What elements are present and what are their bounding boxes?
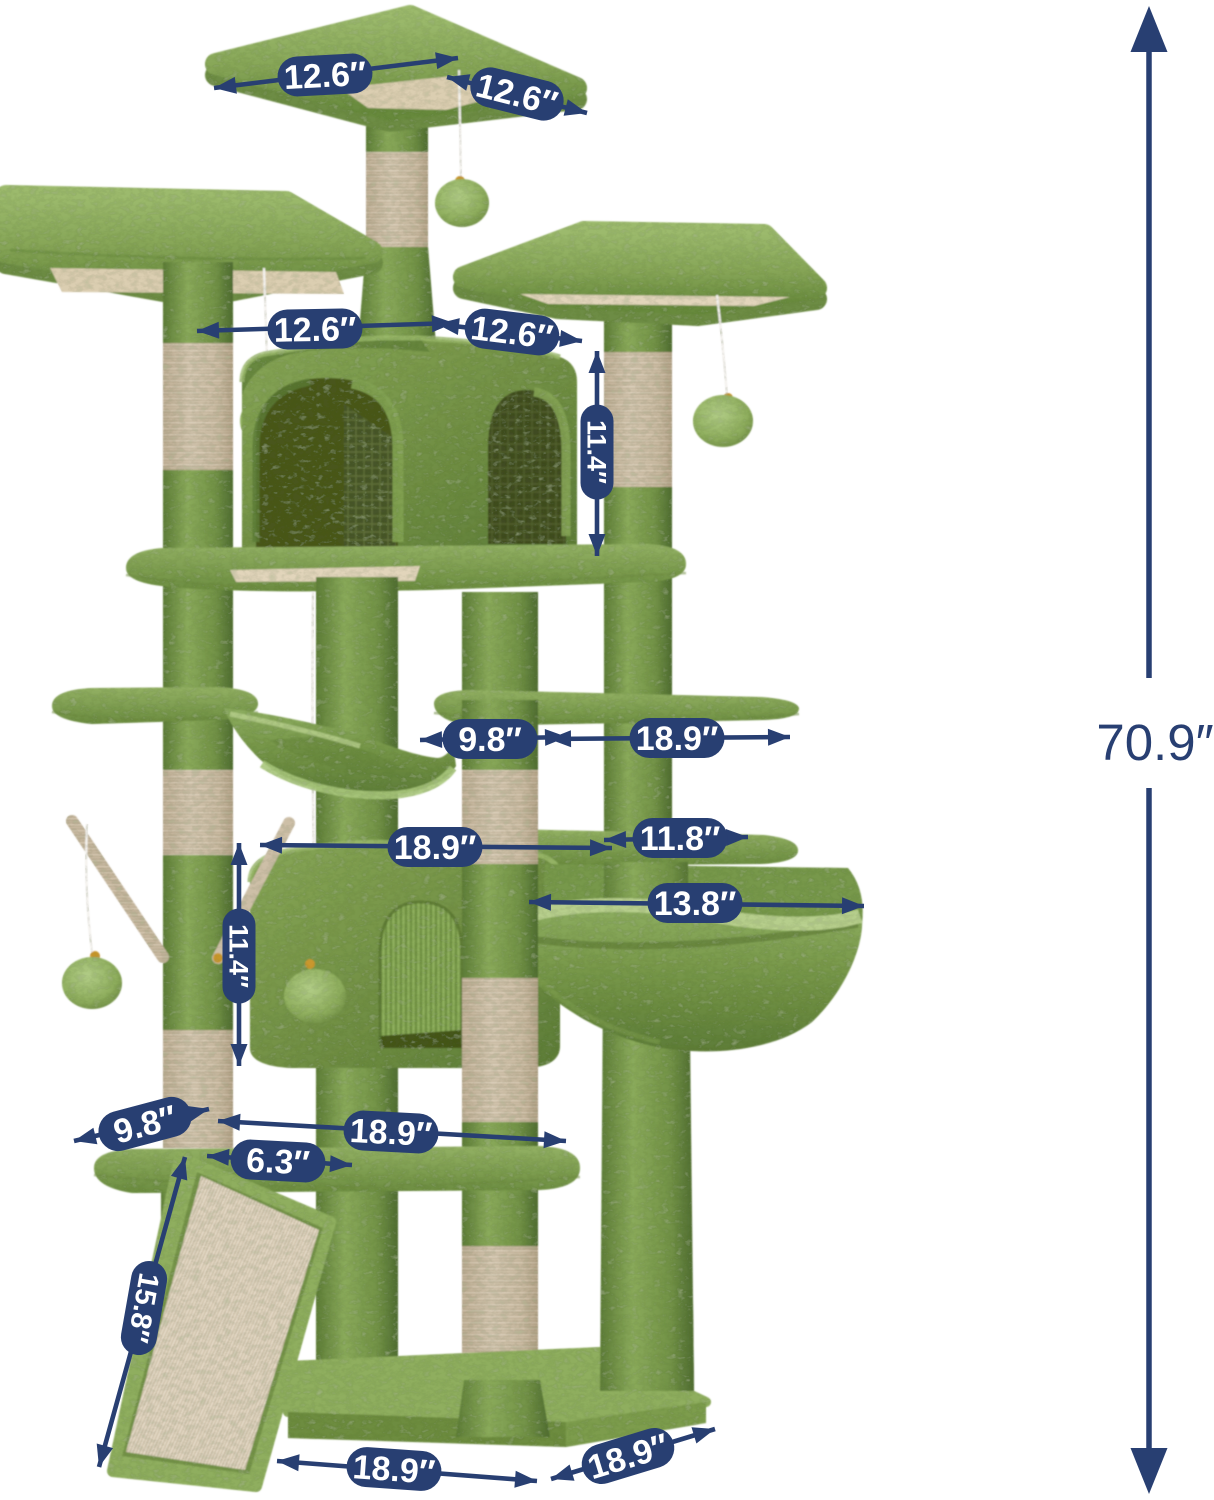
svg-text:18.9″: 18.9″	[394, 829, 476, 867]
svg-text:11.4″: 11.4″	[224, 924, 254, 988]
svg-text:11.4″: 11.4″	[582, 420, 612, 484]
svg-text:18.9″: 18.9″	[636, 720, 718, 758]
svg-text:6.3″: 6.3″	[245, 1141, 310, 1182]
svg-text:18.9″: 18.9″	[351, 1448, 436, 1492]
svg-text:70.9″: 70.9″	[1096, 714, 1213, 771]
svg-text:9.8″: 9.8″	[458, 721, 522, 759]
svg-text:11.8″: 11.8″	[640, 820, 721, 858]
svg-text:13.8″: 13.8″	[654, 885, 736, 923]
svg-text:12.6″: 12.6″	[273, 310, 356, 349]
svg-text:12.6″: 12.6″	[283, 55, 367, 97]
svg-text:18.9″: 18.9″	[349, 1112, 433, 1154]
